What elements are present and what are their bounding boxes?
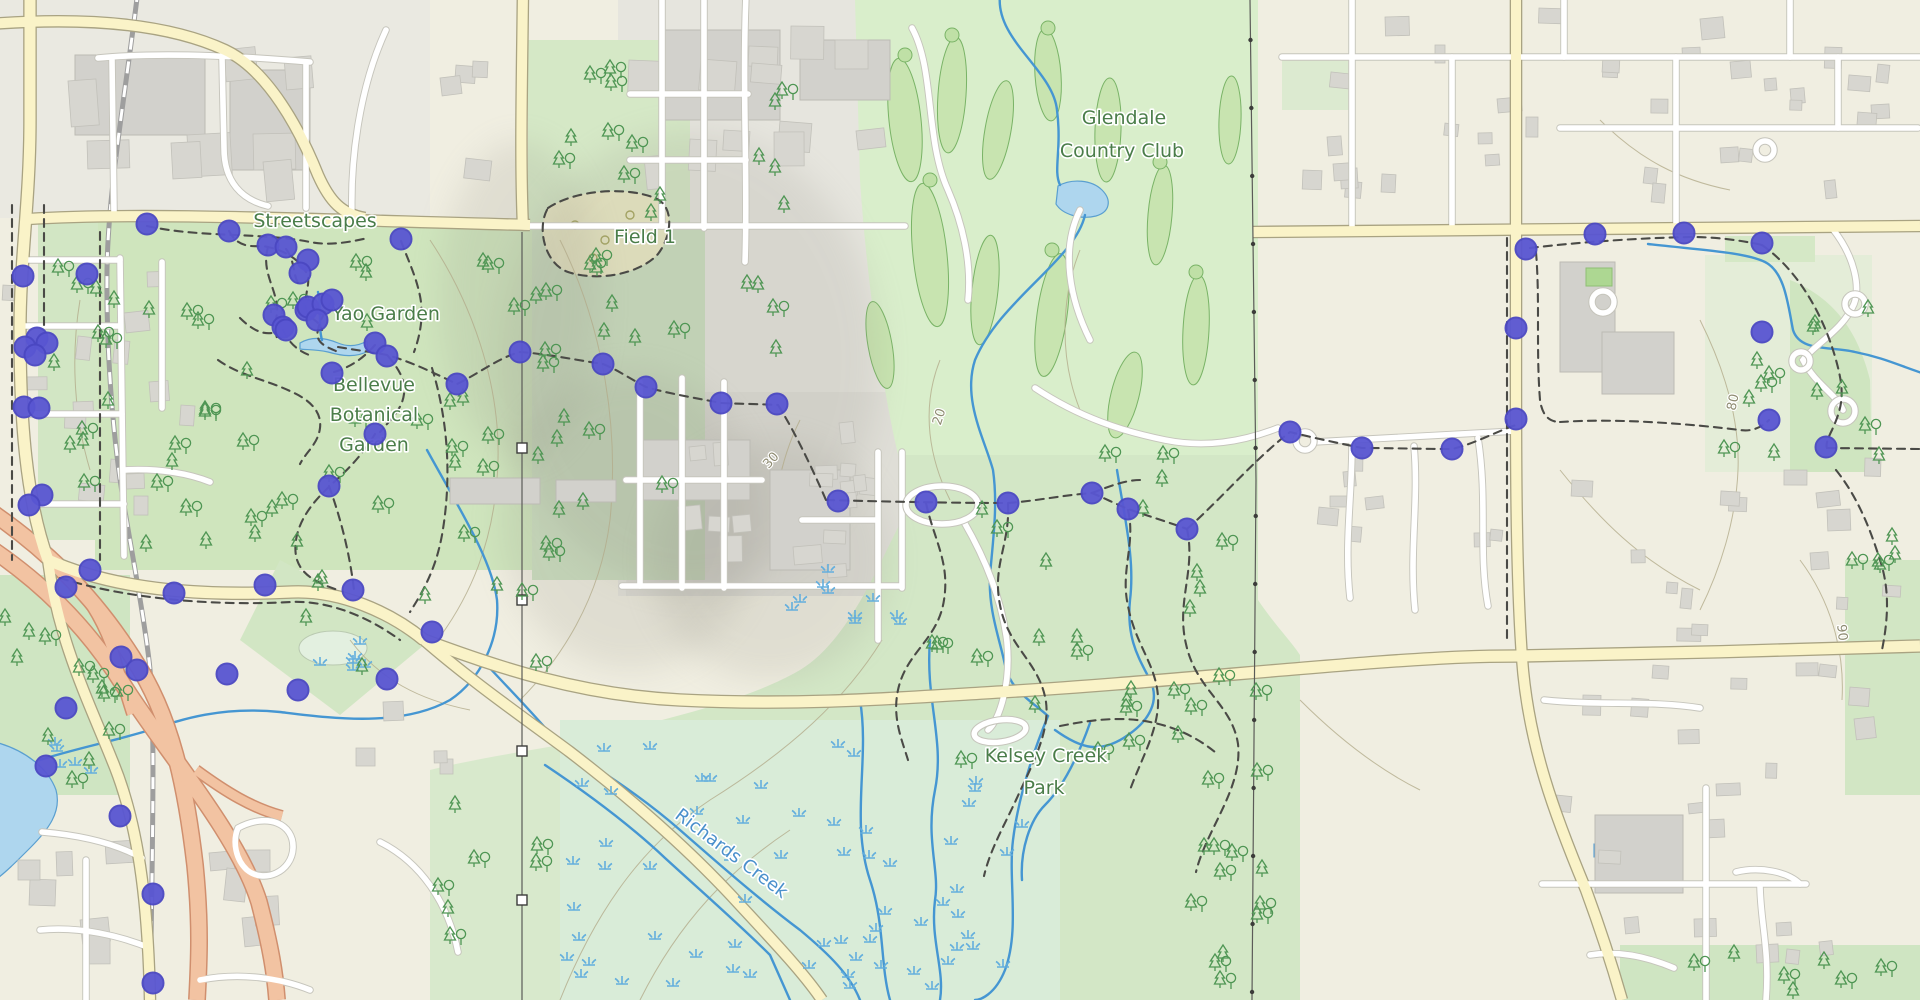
building <box>18 860 40 880</box>
waypoint-dot[interactable] <box>998 493 1019 514</box>
waypoint-dot[interactable] <box>143 973 164 994</box>
building <box>1365 496 1384 510</box>
building <box>1631 550 1645 563</box>
golf-green <box>1045 243 1059 257</box>
road-minor <box>112 60 114 212</box>
waypoint-dot[interactable] <box>1506 318 1527 339</box>
road-minor <box>745 0 746 262</box>
power-pylon-dot <box>1251 854 1255 858</box>
building <box>68 79 99 127</box>
building <box>791 26 824 59</box>
building <box>1716 783 1741 796</box>
power-pylon <box>517 443 527 453</box>
waypoint-dot[interactable] <box>137 214 158 235</box>
waypoint-dot[interactable] <box>288 680 309 701</box>
landuse-area <box>0 0 430 218</box>
building <box>823 530 846 544</box>
waypoint-dot[interactable] <box>127 660 148 681</box>
road-major <box>521 0 523 228</box>
building <box>750 63 781 84</box>
waypoint-dot[interactable] <box>1280 422 1301 443</box>
waypoint-dot[interactable] <box>636 377 657 398</box>
building <box>1848 75 1871 92</box>
building <box>732 514 752 533</box>
map-label-park: Kelsey Creek <box>985 745 1107 767</box>
building <box>134 496 148 515</box>
waypoint-dot[interactable] <box>307 310 328 331</box>
building <box>180 405 195 426</box>
waypoint-dot[interactable] <box>391 229 412 250</box>
waypoint-dot[interactable] <box>80 560 101 581</box>
building <box>853 475 867 492</box>
power-pylon <box>517 746 527 756</box>
waypoint-dot[interactable] <box>25 345 46 366</box>
waypoint-dot[interactable] <box>56 577 77 598</box>
building <box>1317 507 1339 526</box>
building <box>856 128 886 150</box>
building <box>1731 678 1747 689</box>
building <box>171 141 202 179</box>
building <box>87 140 130 169</box>
waypoint-dot[interactable] <box>1759 410 1780 431</box>
building <box>1784 470 1807 485</box>
waypoint-dot[interactable] <box>56 698 77 719</box>
building <box>440 76 462 96</box>
power-pylon-dot <box>1251 786 1255 790</box>
building <box>472 61 488 78</box>
waypoint-dot[interactable] <box>217 664 238 685</box>
building <box>29 879 56 906</box>
waypoint-dot[interactable] <box>29 398 50 419</box>
building <box>1691 624 1708 636</box>
power-pylon-dot <box>1253 446 1257 450</box>
power-pylon-dot <box>1253 378 1257 382</box>
power-pylon-dot <box>1252 310 1256 314</box>
power-pylon-dot <box>1254 514 1258 518</box>
building <box>1766 763 1777 778</box>
map-label-park: Streetscapes <box>253 210 376 232</box>
building <box>1598 850 1621 864</box>
building <box>1816 490 1841 508</box>
map-label-park: Yao Garden <box>331 303 440 325</box>
waypoint-dot[interactable] <box>767 394 788 415</box>
building <box>1652 665 1669 679</box>
waypoint-dot[interactable] <box>1752 322 1773 343</box>
waypoint-dot[interactable] <box>377 346 398 367</box>
building <box>56 851 73 876</box>
power-pylon <box>517 895 527 905</box>
waypoint-dot[interactable] <box>916 492 937 513</box>
waypoint-dot[interactable] <box>1516 239 1537 260</box>
golf-green <box>1041 21 1055 35</box>
waypoint-dot[interactable] <box>1442 439 1463 460</box>
building <box>1385 16 1410 36</box>
landuse-area <box>430 745 560 1000</box>
building <box>434 751 447 763</box>
building <box>1327 136 1343 156</box>
building <box>1688 802 1704 814</box>
building <box>1849 687 1870 707</box>
waypoint-dot[interactable] <box>1816 437 1837 458</box>
waypoint-dot[interactable] <box>1752 233 1773 254</box>
building <box>147 272 159 287</box>
waypoint-dot[interactable] <box>343 580 364 601</box>
map-svg: StreetscapesYao GardenBellevueBotanicalG… <box>0 0 1920 1000</box>
waypoint-dot[interactable] <box>447 374 468 395</box>
road-minor <box>120 258 124 556</box>
building <box>1678 729 1699 744</box>
building <box>1302 170 1322 190</box>
map-label-contour: 90 <box>1833 624 1850 642</box>
building <box>628 60 662 95</box>
power-pylon-dot <box>1248 38 1252 42</box>
building <box>774 132 804 166</box>
waypoint-dot[interactable] <box>1352 438 1373 459</box>
building <box>1538 8 1563 24</box>
building <box>1876 64 1890 83</box>
waypoint-dot[interactable] <box>1118 499 1139 520</box>
building <box>839 421 855 443</box>
building <box>793 545 822 565</box>
building <box>1854 717 1876 740</box>
golf-green <box>1189 265 1203 279</box>
building <box>1776 922 1792 936</box>
waypoint-dot[interactable] <box>377 669 398 690</box>
building <box>1827 509 1851 531</box>
building <box>1796 663 1818 676</box>
waypoint-dot[interactable] <box>143 884 164 905</box>
waypoint-dot[interactable] <box>1674 223 1695 244</box>
building <box>1381 174 1396 193</box>
map-label-park: Bellevue <box>333 374 415 396</box>
building <box>1720 491 1740 506</box>
waypoint-dot[interactable] <box>828 491 849 512</box>
waypoint-dot[interactable] <box>1082 483 1103 504</box>
power-pylon-dot <box>1253 582 1257 586</box>
building <box>1490 529 1503 541</box>
golf-green <box>898 48 912 62</box>
power-pylon-dot <box>1252 718 1256 722</box>
building <box>1651 183 1666 203</box>
building <box>1680 588 1693 609</box>
waypoint-dot[interactable] <box>77 264 98 285</box>
building <box>1571 480 1593 497</box>
building <box>1739 148 1753 162</box>
power-pylon-dot <box>1250 174 1254 178</box>
waypoint-dot[interactable] <box>290 263 311 284</box>
building <box>1485 154 1500 166</box>
building <box>840 463 856 477</box>
waypoint-dot[interactable] <box>1585 224 1606 245</box>
building <box>835 40 868 69</box>
road-minor <box>1413 446 1415 610</box>
power-pylon-dot <box>1249 106 1253 110</box>
waypoint-dot[interactable] <box>255 575 276 596</box>
waypoint-dot[interactable] <box>276 320 297 341</box>
building <box>1624 917 1640 934</box>
map-label-park: Glendale <box>1082 107 1166 129</box>
map-canvas[interactable]: StreetscapesYao GardenBellevueBotanicalG… <box>0 0 1920 1000</box>
building <box>356 748 375 766</box>
waypoint-dot[interactable] <box>322 363 343 384</box>
building-green <box>1586 268 1612 286</box>
waypoint-dot[interactable] <box>219 221 240 242</box>
building <box>1651 99 1668 113</box>
waypoint-dot[interactable] <box>319 476 340 497</box>
power-pylon-dot <box>1250 922 1254 926</box>
building <box>1819 941 1834 956</box>
building <box>263 159 295 201</box>
power-pylon-dot <box>1251 242 1255 246</box>
waypoint-dot[interactable] <box>365 424 386 445</box>
building <box>1643 167 1658 184</box>
golf-green <box>945 28 959 42</box>
building <box>827 564 847 578</box>
building <box>1602 332 1674 394</box>
building <box>1666 582 1678 594</box>
building <box>689 445 706 461</box>
building <box>1824 180 1837 199</box>
building <box>1478 133 1492 144</box>
power-pylon-dot <box>1252 650 1256 654</box>
waypoint-dot[interactable] <box>276 237 297 258</box>
waypoint-dot[interactable] <box>110 806 131 827</box>
building <box>1819 664 1837 678</box>
waypoint-dot[interactable] <box>19 495 40 516</box>
building <box>1764 78 1777 91</box>
waypoint-dot[interactable] <box>322 290 343 311</box>
building <box>1720 147 1739 163</box>
building <box>1790 100 1802 110</box>
building <box>450 478 540 504</box>
building <box>75 336 92 360</box>
building <box>1785 949 1800 964</box>
waypoint-dot[interactable] <box>510 342 531 363</box>
building <box>1730 60 1751 79</box>
waypoint-dot[interactable] <box>36 756 57 777</box>
building <box>1700 17 1725 40</box>
building <box>464 158 492 181</box>
building <box>383 701 404 721</box>
map-label-park: Park <box>1023 777 1064 799</box>
building <box>809 473 833 487</box>
waypoint-dot[interactable] <box>422 622 443 643</box>
building <box>1810 552 1829 570</box>
building <box>126 473 145 489</box>
building <box>1526 117 1538 137</box>
map-label-park: Field 1 <box>614 226 676 248</box>
waypoint-dot[interactable] <box>1177 519 1198 540</box>
waypoint-dot[interactable] <box>13 266 34 287</box>
building <box>1836 597 1848 610</box>
waypoint-dot[interactable] <box>1506 409 1527 430</box>
map-label-park: Country Club <box>1060 140 1184 162</box>
waypoint-dot[interactable] <box>711 393 732 414</box>
golf-green <box>923 173 937 187</box>
waypoint-dot[interactable] <box>164 583 185 604</box>
power-pylon-dot <box>1250 990 1254 994</box>
waypoint-dot[interactable] <box>593 354 614 375</box>
